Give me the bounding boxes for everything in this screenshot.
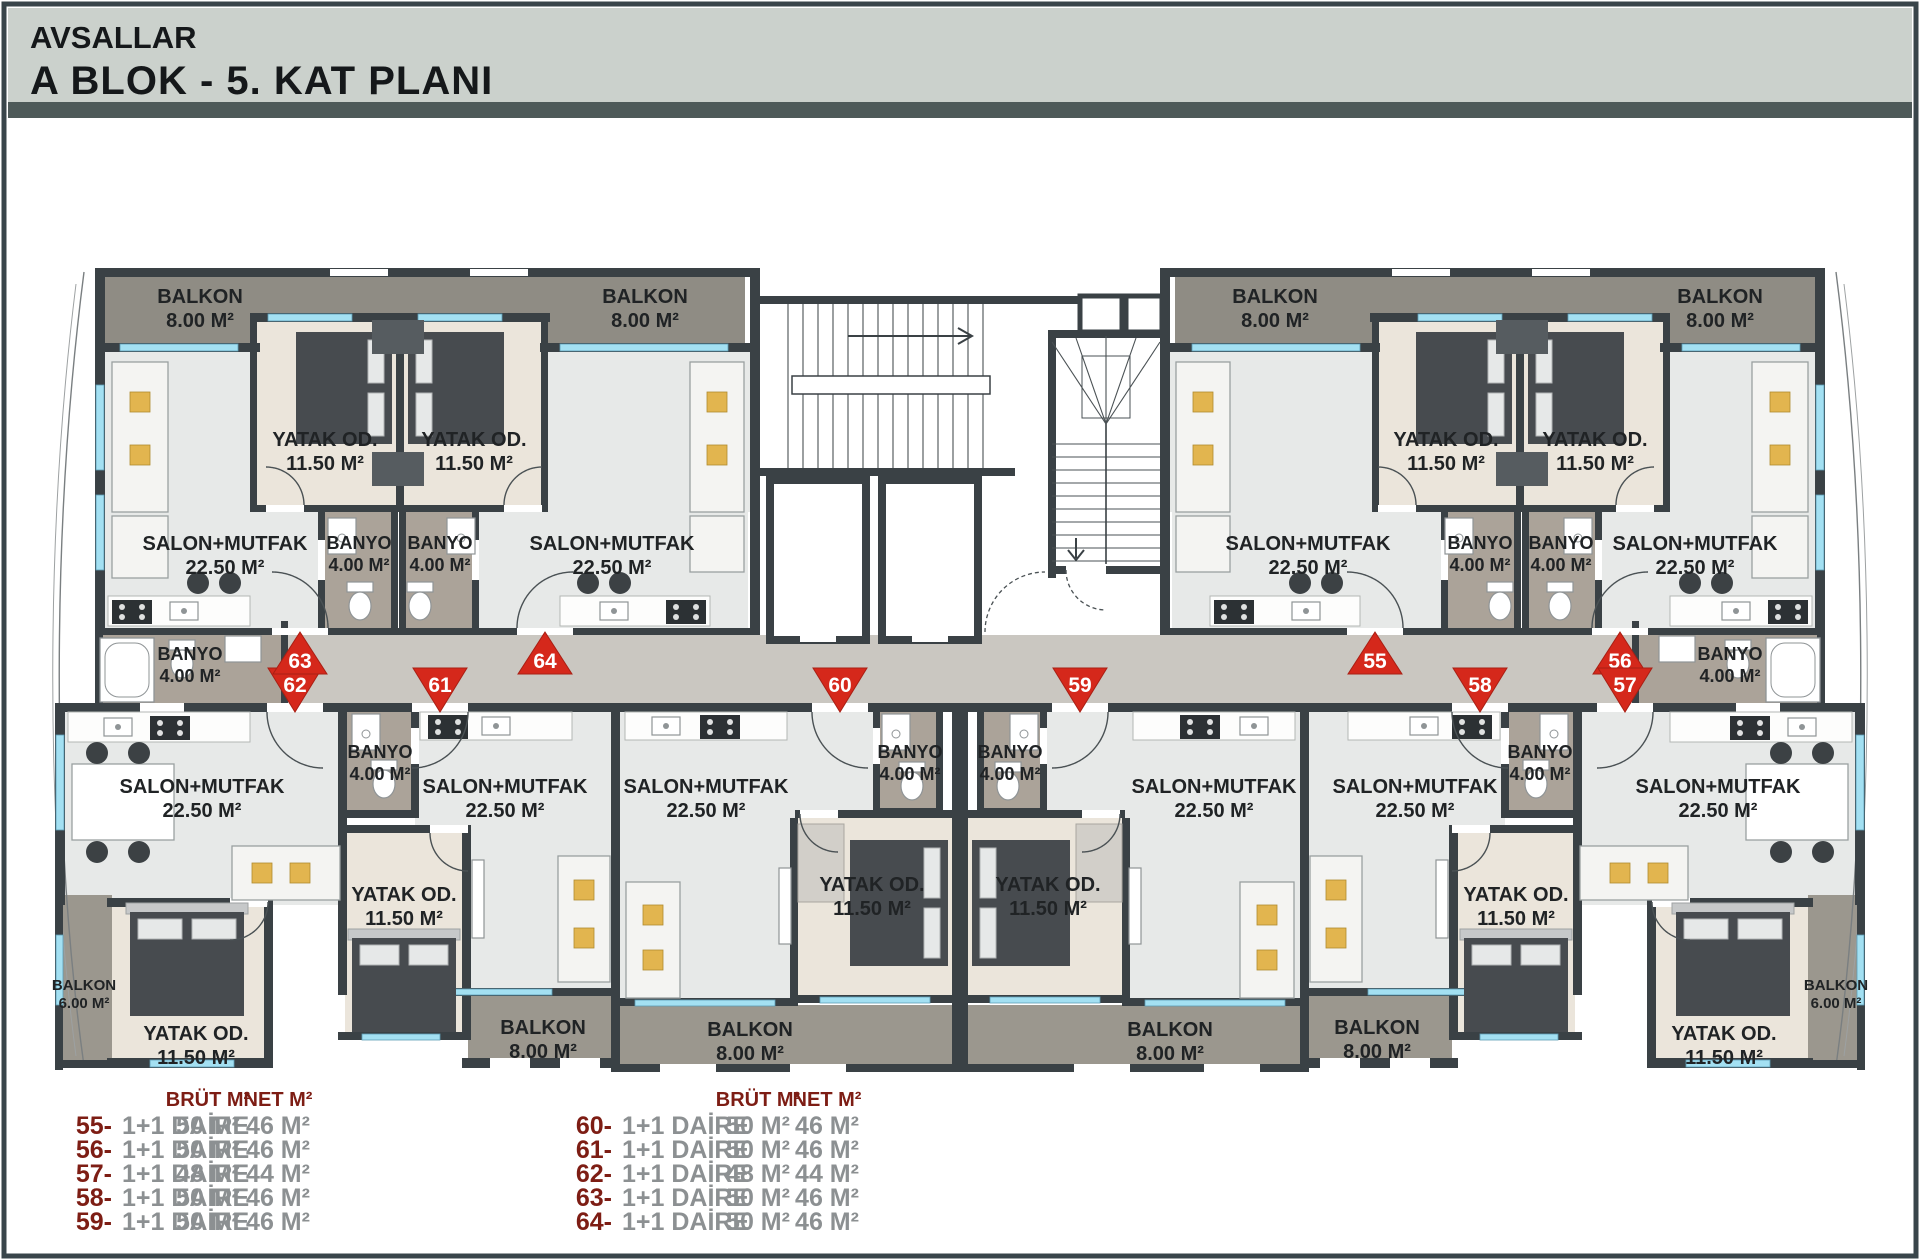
room-floor	[795, 710, 878, 818]
shaft	[1126, 296, 1162, 332]
svg-text:SALON+MUTFAK: SALON+MUTFAK	[624, 776, 790, 798]
svg-text:SALON+MUTFAK: SALON+MUTFAK	[423, 776, 589, 798]
svg-text:BALKON: BALKON	[1127, 1019, 1213, 1041]
svg-text:4.00 M²: 4.00 M²	[1509, 764, 1570, 784]
svg-text:YATAK OD.: YATAK OD.	[272, 429, 377, 451]
window	[268, 314, 352, 321]
wall	[760, 468, 1015, 476]
project-title: AVSALLAR	[30, 20, 196, 55]
svg-text:BALKON: BALKON	[707, 1019, 793, 1041]
svg-text:4.00 M²: 4.00 M²	[979, 764, 1040, 784]
svg-text:SALON+MUTFAK: SALON+MUTFAK	[530, 533, 696, 555]
svg-text:8.00 M²: 8.00 M²	[1136, 1043, 1204, 1065]
legend-header-brut: BRÜT M²	[716, 1088, 801, 1111]
pillow	[130, 392, 150, 412]
svg-text:11.50 M²: 11.50 M²	[1477, 908, 1555, 930]
stair-elevator-core	[755, 296, 1165, 644]
svg-text:4.00 M²: 4.00 M²	[1449, 555, 1510, 575]
wall	[541, 318, 548, 512]
chair-icon	[86, 742, 108, 764]
window	[820, 997, 930, 1003]
svg-text:BALKON: BALKON	[1232, 286, 1318, 308]
svg-text:YATAK OD.: YATAK OD.	[1463, 884, 1568, 906]
svg-text:11.50 M²: 11.50 M²	[1407, 453, 1485, 475]
door-opening	[318, 540, 325, 580]
window	[120, 344, 238, 351]
door-opening	[790, 1064, 846, 1072]
svg-text:BANYO: BANYO	[157, 644, 222, 664]
legend-header-net: NET M²	[244, 1089, 313, 1111]
svg-text:8.00 M²: 8.00 M²	[1686, 310, 1754, 332]
svg-text:SALON+MUTFAK: SALON+MUTFAK	[1132, 776, 1298, 798]
svg-text:8.00 M²: 8.00 M²	[509, 1041, 577, 1063]
pillow	[707, 392, 727, 412]
door-opening	[430, 825, 468, 833]
svg-text:58: 58	[1468, 674, 1492, 697]
pillow	[252, 863, 272, 883]
page-title: A BLOK - 5. KAT PLANI	[30, 59, 493, 103]
room-label-balkon-57: BALKON6.00 M²	[1804, 977, 1868, 1012]
wall	[1048, 330, 1056, 578]
stove-icon	[150, 716, 190, 740]
svg-text:8.00 M²: 8.00 M²	[166, 310, 234, 332]
svg-text:BANYO: BANYO	[347, 742, 412, 762]
svg-text:YATAK OD.: YATAK OD.	[1542, 429, 1647, 451]
wall	[952, 703, 960, 1072]
svg-text:BANYO: BANYO	[977, 742, 1042, 762]
stove-icon	[700, 715, 740, 739]
stove-icon	[428, 715, 468, 739]
sofa	[112, 362, 168, 512]
svg-text:22.50 M²: 22.50 M²	[1269, 557, 1348, 579]
wall	[100, 268, 750, 277]
svg-text:BANYO: BANYO	[1528, 533, 1593, 553]
svg-text:BANYO: BANYO	[877, 742, 942, 762]
svg-text:4.00 M²: 4.00 M²	[349, 764, 410, 784]
svg-text:61: 61	[428, 674, 452, 697]
stair-landing	[792, 376, 990, 394]
svg-text:22.50 M²: 22.50 M²	[667, 800, 746, 822]
svg-text:50 M²: 50 M²	[726, 1208, 790, 1236]
stove-icon	[666, 600, 706, 624]
svg-text:57: 57	[1613, 674, 1636, 697]
window	[635, 1000, 775, 1006]
svg-text:4.00 M²: 4.00 M²	[409, 555, 470, 575]
room-floor	[255, 276, 545, 318]
chair-icon	[128, 841, 150, 863]
door-opening	[330, 269, 388, 276]
door-opening	[660, 1064, 716, 1072]
door-opening	[504, 505, 542, 512]
toilet-icon	[409, 592, 431, 620]
pillow	[574, 880, 594, 900]
svg-text:11.50 M²: 11.50 M²	[1556, 453, 1634, 475]
pillow	[643, 905, 663, 925]
sofa	[690, 362, 744, 512]
legend-row-59: 59-1+1 DAİRE50 M²46 M²	[76, 1208, 310, 1236]
svg-text:60: 60	[828, 674, 851, 697]
window	[96, 495, 104, 570]
bath-sink-icon	[225, 636, 261, 662]
svg-text:64-: 64-	[576, 1208, 612, 1236]
svg-text:4.00 M²: 4.00 M²	[328, 555, 389, 575]
svg-text:BALKON: BALKON	[1334, 1017, 1420, 1039]
svg-text:64: 64	[533, 650, 557, 673]
svg-text:22.50 M²: 22.50 M²	[186, 557, 265, 579]
wardrobe	[372, 452, 424, 486]
svg-text:22.50 M²: 22.50 M²	[573, 557, 652, 579]
window	[560, 344, 728, 351]
svg-text:22.50 M²: 22.50 M²	[466, 800, 545, 822]
floor-plan-page: AVSALLAR A BLOK - 5. KAT PLANI BALKON8.0…	[0, 0, 1920, 1260]
sofa	[232, 846, 340, 900]
svg-text:BANYO: BANYO	[1697, 644, 1762, 664]
svg-text:22.50 M²: 22.50 M²	[163, 800, 242, 822]
svg-text:22.50 M²: 22.50 M²	[1656, 557, 1735, 579]
svg-text:BALKON: BALKON	[1804, 977, 1868, 994]
wardrobe	[372, 320, 424, 354]
svg-text:BALKON: BALKON	[1677, 286, 1763, 308]
pillow	[643, 950, 663, 970]
svg-text:62: 62	[283, 674, 306, 697]
door-opening	[266, 505, 304, 512]
svg-text:4.00 M²: 4.00 M²	[1699, 666, 1760, 686]
svg-text:YATAK OD.: YATAK OD.	[351, 884, 456, 906]
svg-text:YATAK OD.: YATAK OD.	[421, 429, 526, 451]
sofa	[558, 856, 610, 982]
svg-text:SALON+MUTFAK: SALON+MUTFAK	[1333, 776, 1499, 798]
floor-plan-canvas: AVSALLAR A BLOK - 5. KAT PLANI BALKON8.0…	[0, 0, 1920, 1260]
wall	[55, 1060, 119, 1068]
chair-icon	[128, 742, 150, 764]
wall	[750, 268, 760, 635]
svg-text:BANYO: BANYO	[1507, 742, 1572, 762]
svg-text:YATAK OD.: YATAK OD.	[143, 1023, 248, 1045]
legend-header-brut: BRÜT M²	[166, 1088, 251, 1111]
svg-text:SALON+MUTFAK: SALON+MUTFAK	[1226, 533, 1392, 555]
wall	[611, 703, 620, 998]
wall	[391, 505, 398, 632]
shaft	[1080, 296, 1122, 332]
wall	[345, 810, 419, 818]
header-divider	[8, 102, 1912, 118]
svg-text:11.50 M²: 11.50 M²	[365, 908, 443, 930]
svg-text:6.00 M²: 6.00 M²	[1811, 995, 1862, 1012]
svg-text:11.50 M²: 11.50 M²	[1009, 898, 1087, 920]
svg-text:59-: 59-	[76, 1208, 112, 1236]
wall	[250, 318, 257, 512]
pillow	[574, 928, 594, 948]
svg-text:4.00 M²: 4.00 M²	[879, 764, 940, 784]
svg-text:SALON+MUTFAK: SALON+MUTFAK	[1613, 533, 1779, 555]
window	[418, 314, 502, 321]
pillow	[707, 445, 727, 465]
tv-unit	[779, 868, 791, 944]
svg-text:46 M²: 46 M²	[246, 1208, 310, 1236]
window	[56, 735, 64, 830]
room-label-balkon-62: BALKON6.00 M²	[52, 977, 116, 1012]
svg-text:YATAK OD.: YATAK OD.	[819, 874, 924, 896]
svg-text:BANYO: BANYO	[407, 533, 472, 553]
svg-text:63: 63	[288, 650, 311, 673]
tv-unit	[472, 860, 484, 938]
svg-text:8.00 M²: 8.00 M²	[611, 310, 679, 332]
pillow	[290, 863, 310, 883]
svg-text:8.00 M²: 8.00 M²	[1241, 310, 1309, 332]
door-opening	[470, 269, 528, 276]
svg-text:BALKON: BALKON	[157, 286, 243, 308]
door-opening	[800, 810, 838, 818]
svg-text:SALON+MUTFAK: SALON+MUTFAK	[143, 533, 309, 555]
door-opening	[140, 703, 184, 712]
svg-text:11.50 M²: 11.50 M²	[833, 898, 911, 920]
svg-text:59: 59	[1068, 674, 1091, 697]
svg-text:8.00 M²: 8.00 M²	[716, 1043, 784, 1065]
svg-text:11.50 M²: 11.50 M²	[157, 1047, 235, 1069]
legend-header-net: NET M²	[793, 1089, 862, 1111]
svg-text:YATAK OD.: YATAK OD.	[995, 874, 1100, 896]
window	[96, 385, 104, 470]
chair-icon	[86, 841, 108, 863]
svg-text:SALON+MUTFAK: SALON+MUTFAK	[120, 776, 286, 798]
svg-text:22.50 M²: 22.50 M²	[1175, 800, 1254, 822]
svg-text:BALKON: BALKON	[500, 1017, 586, 1039]
wall	[611, 995, 620, 1072]
svg-text:6.00 M²: 6.00 M²	[59, 995, 110, 1012]
svg-text:BALKON: BALKON	[52, 977, 116, 994]
window	[362, 1034, 440, 1040]
svg-text:BANYO: BANYO	[326, 533, 391, 553]
sofa	[626, 882, 680, 998]
svg-text:22.50 M²: 22.50 M²	[1376, 800, 1455, 822]
wall	[462, 825, 471, 1040]
toilet-icon	[349, 592, 371, 620]
stove-icon	[112, 600, 152, 624]
svg-text:11.50 M²: 11.50 M²	[286, 453, 364, 475]
svg-text:22.50 M²: 22.50 M²	[1679, 800, 1758, 822]
svg-text:55: 55	[1363, 650, 1387, 673]
svg-text:11.50 M²: 11.50 M²	[1685, 1047, 1763, 1069]
sofa	[690, 516, 744, 572]
svg-text:11.50 M²: 11.50 M²	[435, 453, 513, 475]
pillow	[130, 445, 150, 465]
svg-text:4.00 M²: 4.00 M²	[159, 666, 220, 686]
wall	[399, 505, 406, 632]
svg-text:YATAK OD.: YATAK OD.	[1393, 429, 1498, 451]
svg-text:YATAK OD.: YATAK OD.	[1671, 1023, 1776, 1045]
svg-text:SALON+MUTFAK: SALON+MUTFAK	[1636, 776, 1802, 798]
svg-text:46 M²: 46 M²	[795, 1208, 859, 1236]
wall	[264, 898, 273, 1068]
svg-text:4.00 M²: 4.00 M²	[1530, 555, 1591, 575]
svg-text:BALKON: BALKON	[602, 286, 688, 308]
svg-text:BANYO: BANYO	[1447, 533, 1512, 553]
svg-text:8.00 M²: 8.00 M²	[1343, 1041, 1411, 1063]
svg-text:50 M²: 50 M²	[176, 1208, 240, 1236]
